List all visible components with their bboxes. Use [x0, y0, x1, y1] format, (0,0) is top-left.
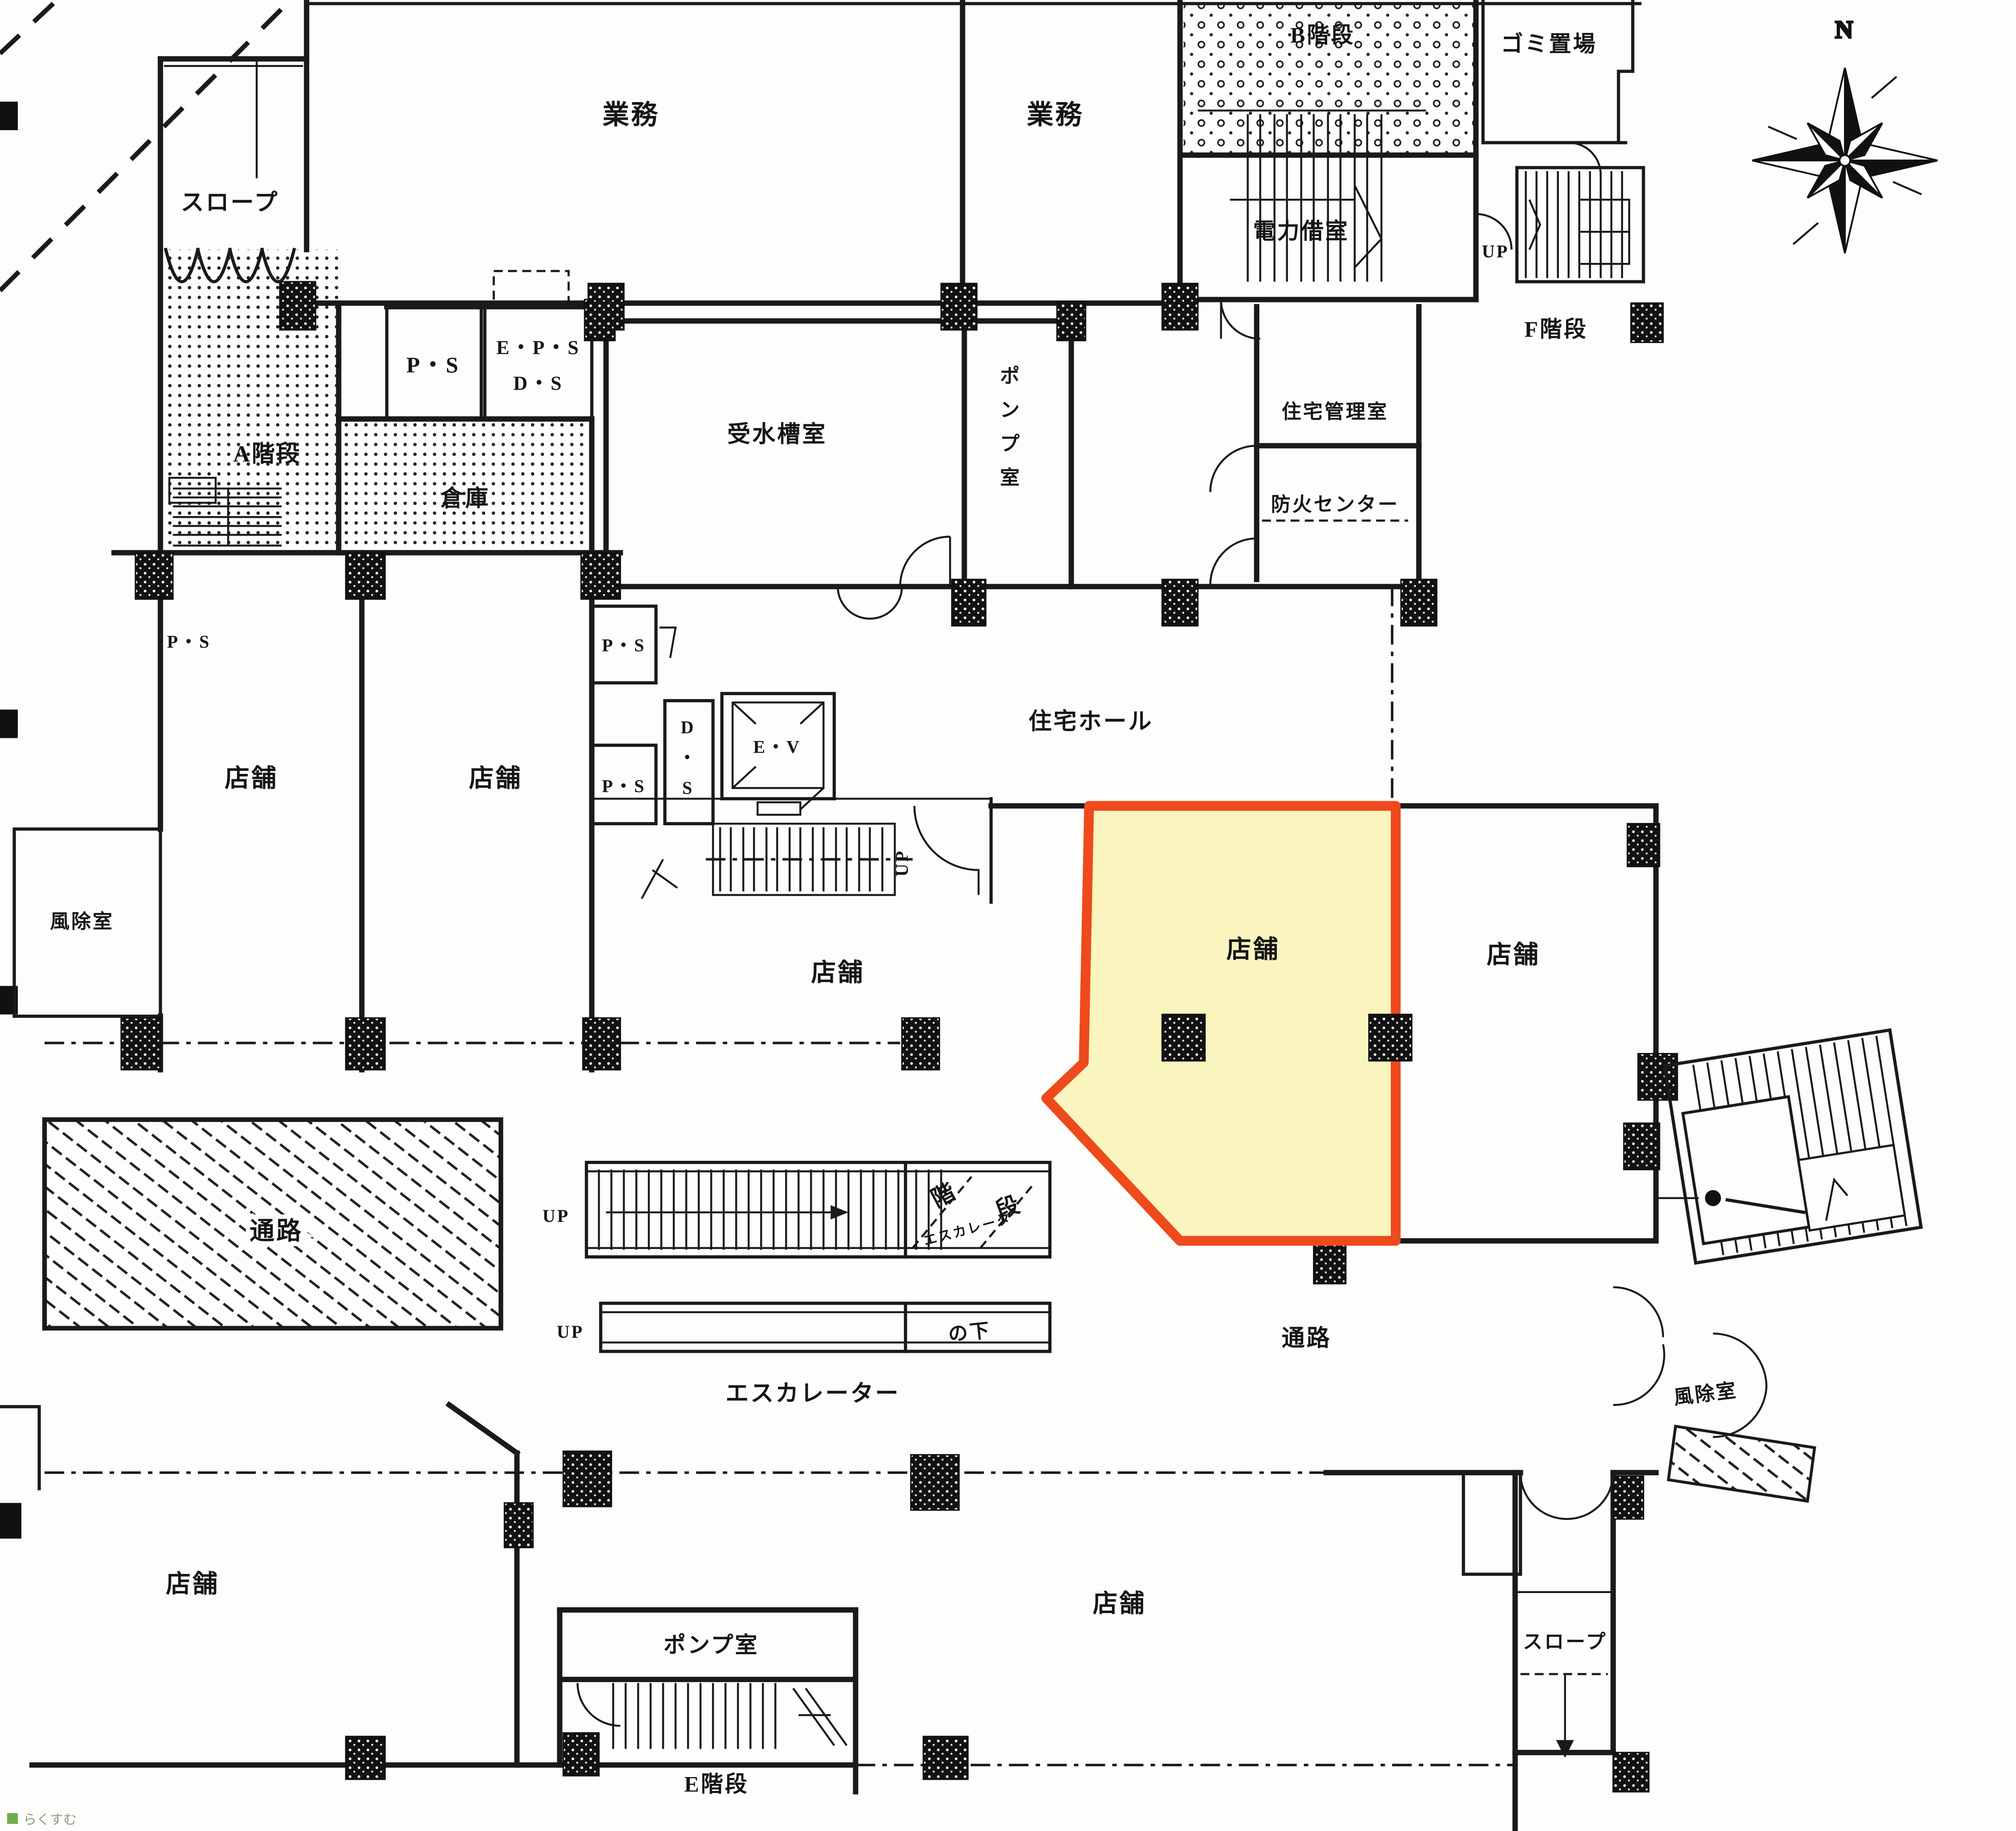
label-tenpo-l2: 店舗	[469, 765, 522, 792]
door-arc	[914, 806, 978, 895]
label-up-esc2: UP	[557, 1322, 584, 1342]
watermark-text: らくすむ	[23, 1812, 77, 1827]
mark-7	[659, 627, 675, 658]
label-souko: 倉庫	[440, 486, 490, 512]
label-escalator: エスカレーター	[725, 1381, 900, 1407]
label-ps-left: P・S	[167, 632, 211, 652]
label-eps: E・P・S	[496, 336, 581, 358]
compass-north-label: N	[1835, 16, 1855, 44]
svg-text:プ: プ	[1000, 433, 1021, 455]
watermark-logo: らくすむ	[7, 1812, 77, 1827]
label-ds-core: D ・ S	[678, 717, 698, 798]
label-denryoku: 電力借室	[1253, 219, 1349, 244]
svg-text:ポ: ポ	[1000, 365, 1021, 387]
hand-note-kai: 階	[927, 1177, 961, 1212]
label-tenpo-center: 店舗	[811, 959, 864, 987]
fujo-right-glass-panel	[1668, 1426, 1815, 1501]
site-boundary-dashes	[0, 0, 290, 291]
pillar	[1162, 1015, 1205, 1061]
left-edge-wall-marks	[0, 102, 39, 1539]
label-gyomu-right: 業務	[1027, 100, 1084, 130]
label-up-f: UP	[1482, 241, 1509, 261]
f-stairs-steps-icon	[1517, 168, 1644, 282]
svg-text:ン: ン	[1000, 399, 1021, 421]
label-jusuiso: 受水槽室	[727, 422, 827, 447]
label-a-stairs: A階段	[233, 441, 302, 467]
label-up-core: UP	[892, 849, 912, 877]
hand-note-shita: の下	[947, 1319, 992, 1346]
highlighted-unit-outline	[1047, 806, 1396, 1241]
svg-text:室: 室	[1000, 466, 1021, 488]
label-b-stairs: B階段	[1290, 23, 1355, 48]
svg-text:S: S	[682, 778, 694, 798]
label-tenpo-bottom-center: 店舗	[1093, 1590, 1146, 1618]
label-tsuro-right: 通路	[1282, 1326, 1332, 1352]
label-slope-right: スロープ	[1523, 1631, 1607, 1653]
label-fujo-right: 風除室	[1673, 1379, 1739, 1409]
right-skewed-stairs-icon	[1664, 1030, 1921, 1263]
label-fujo-left: 風除室	[50, 910, 114, 933]
direction-arrow	[830, 1205, 848, 1220]
slope-direction-arrow	[1556, 1674, 1574, 1758]
svg-text:D: D	[681, 717, 695, 737]
floor-plan: スロープ A階段 P・S E・P・S D・S 倉庫 業務 業務 B階段 ゴミ置場…	[0, 0, 2016, 1831]
label-kanri: 住宅管理室	[1282, 400, 1389, 422]
label-ps-service: P・S	[406, 352, 460, 377]
label-ev: E・V	[753, 737, 801, 757]
label-up-esc1: UP	[543, 1206, 570, 1226]
highlighted-unit	[1047, 806, 1412, 1241]
label-tenpo-bottom-left: 店舗	[166, 1571, 219, 1598]
label-hall: 住宅ホール	[1029, 709, 1153, 734]
label-f-kaidan: F階段	[1524, 317, 1588, 342]
label-bouka: 防火センター	[1271, 493, 1399, 515]
label-tsuro-left: 通路	[249, 1218, 303, 1245]
label-ps-core-bottom: P・S	[602, 776, 646, 796]
hand-note-esc: エスカレータ	[922, 1210, 1014, 1249]
label-gomi-okiba: ゴミ置場	[1501, 32, 1597, 57]
svg-text:・: ・	[678, 748, 698, 768]
label-ps-core-top: P・S	[602, 635, 646, 655]
label-gyomu-left: 業務	[602, 100, 659, 130]
compass-icon: N	[1752, 16, 1938, 253]
label-tenpo-l1: 店舗	[225, 765, 278, 792]
label-ds-service: D・S	[513, 372, 563, 394]
swing-door-icon	[1613, 1287, 1664, 1405]
label-pump-vertical: ポ ン プ 室	[1000, 365, 1021, 488]
label-slope-top: スロープ	[181, 190, 279, 216]
label-tenpo-highlight: 店舗	[1227, 936, 1280, 963]
label-pump-bottom: ポンプ室	[663, 1632, 759, 1657]
e-stairs-steps-icon	[613, 1683, 846, 1749]
post-symbol	[1705, 1190, 1721, 1206]
label-e-kaidan: E階段	[684, 1771, 749, 1796]
core-stairs-steps-icon	[642, 823, 912, 898]
pillar	[1369, 1015, 1412, 1061]
label-tenpo-right: 店舗	[1487, 941, 1540, 969]
